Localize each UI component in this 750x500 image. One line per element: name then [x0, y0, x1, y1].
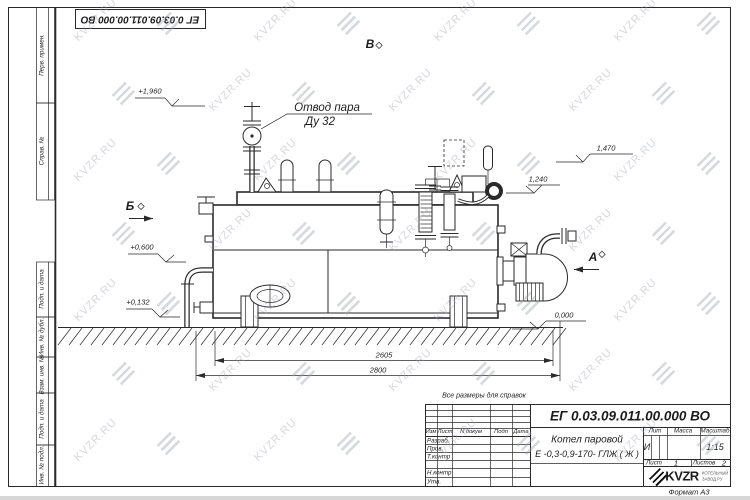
dimension-2800: 2800 [370, 366, 387, 375]
titleblock-masshtab-value: 1:15 [706, 442, 724, 452]
side-label-inv-podl: Инв. № подл. [39, 445, 46, 484]
left-fittings [181, 197, 215, 327]
titleblock-header-list: Лист [438, 429, 453, 435]
titleblock-row-tkontr: Т.контр [427, 453, 450, 460]
elevation-0000: 0,000 [555, 311, 574, 320]
titleblock-header-data: Дата [513, 429, 528, 435]
callout-steam-outlet-line1: Отвод пара [294, 102, 360, 114]
side-label-podp-data-2: Подп. и дата [39, 399, 46, 438]
titleblock-masshtab-label: Масштаб [701, 428, 730, 435]
dimension-2605: 2605 [376, 351, 393, 360]
air-valve [428, 167, 442, 191]
ground-hatch [58, 328, 566, 345]
side-label-inv-dubl: Инв. № дубл. [39, 318, 46, 357]
drawing-linework [0, 0, 750, 500]
view-label-subscript [599, 251, 605, 257]
elevation-0600: +0,600 [130, 243, 153, 252]
elevation-0132: +0,132 [126, 298, 149, 307]
titleblock-listov-label: Листов [693, 460, 716, 467]
view-label-subscript [138, 203, 144, 209]
manhole [250, 285, 290, 307]
ground [58, 328, 566, 346]
titleblock-lit-label: Лит [649, 428, 662, 435]
reference-note: Все размеры для справок [442, 393, 526, 400]
titleblock-row-razrab: Разраб. [427, 437, 449, 444]
phantom-outline [444, 140, 464, 166]
burner-assembly [497, 226, 576, 311]
side-label-podp-data-1: Подп. и дата [39, 269, 46, 308]
titleblock-header-podp: Подп [494, 429, 508, 435]
drawing-sheet: ЕГ 0.03.09.011.00.000 ВО Перв. примен. С… [0, 0, 750, 500]
sheet-edge-shadow [0, 496, 750, 500]
kvzr-logo-sub1: КОТЕЛЬНЫЙ [702, 471, 728, 476]
titleblock-row-prov: Пров. [427, 445, 443, 452]
elevation-1470: 1,470 [597, 144, 616, 153]
titleblock-row-nkontr: Н.контр [427, 470, 451, 477]
view-label-a: А [589, 250, 598, 264]
titleblock-header-dokum: N докум [460, 429, 482, 435]
titleblock-list-label: Лист [646, 460, 662, 467]
kvzr-logo-text: KVZR [665, 469, 698, 484]
titleblock-header-izm: Изм [426, 429, 437, 435]
product-name-line1: Котел паровой [551, 435, 623, 446]
elevation-1960: +1,960 [138, 87, 161, 96]
safety-valve-pipes [278, 160, 334, 192]
titleblock-row-utv: Утв. [427, 478, 441, 485]
callout-steam-outlet-line2: Ду 32 [305, 116, 335, 128]
titleblock-massa-label: Масса [674, 428, 692, 435]
titleblock-list-value: 1 [674, 459, 678, 468]
titleblock-lit-value: И [644, 442, 650, 452]
view-label-subscript [376, 42, 382, 48]
side-label-sprav-no: Справ. № [39, 137, 46, 166]
elevation-1240: 1,240 [529, 175, 548, 184]
titleblock-listov-value: 2 [722, 459, 726, 468]
stamp-code: ЕГ 0.03.09.011.00.000 ВО [81, 14, 200, 25]
view-label-v: В [366, 37, 375, 51]
side-label-vzam-inv: Взам. инв. № [39, 356, 46, 395]
view-label-b: Б [126, 199, 135, 213]
side-label-perv-primen: Перв. примен. [39, 34, 46, 76]
titleblock-doc-number: ЕГ 0.03.09.011.00.000 ВО [550, 409, 710, 424]
product-name-line2: Е -0,3-0,9-170- ГЛЖ ( Ж ) [535, 449, 639, 459]
kvzr-logo-sub2: ЗАВОД.РУ [702, 477, 723, 482]
